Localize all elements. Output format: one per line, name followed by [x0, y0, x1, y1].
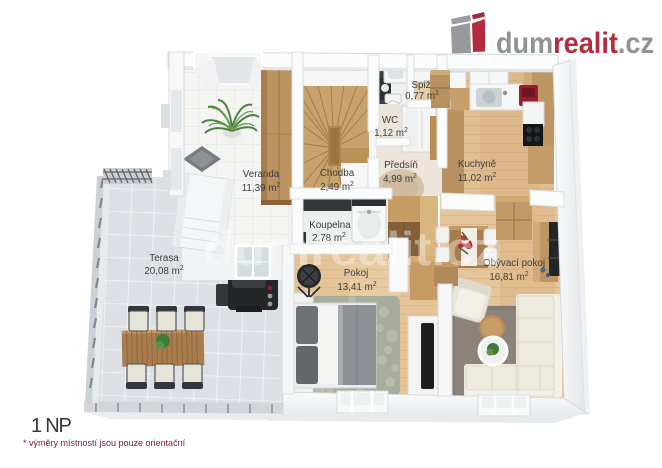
- svg-text:Kuchyně: Kuchyně: [458, 159, 497, 170]
- svg-text:Spiž: Spiž: [411, 80, 430, 91]
- svg-text:11,39 m2: 11,39 m2: [242, 182, 281, 194]
- svg-text:Veranda: Veranda: [243, 169, 280, 180]
- svg-text:0,77 m2: 0,77 m2: [405, 90, 439, 102]
- svg-text:Předsíň: Předsíň: [384, 160, 418, 171]
- svg-text:1,12 m2: 1,12 m2: [374, 127, 408, 139]
- svg-text:1 NP: 1 NP: [31, 415, 72, 437]
- svg-text:11,02 m2: 11,02 m2: [458, 172, 497, 184]
- svg-text:13,41 m2: 13,41 m2: [337, 281, 376, 293]
- svg-text:Terasa: Terasa: [149, 253, 179, 264]
- svg-text:20,08 m2: 20,08 m2: [144, 265, 183, 277]
- svg-text:4,99 m2: 4,99 m2: [383, 173, 417, 185]
- svg-text:WC: WC: [382, 115, 398, 126]
- svg-text:dumrealit.cz: dumrealit.cz: [496, 27, 654, 60]
- svg-text:* výměry místností jsou pouze: * výměry místností jsou pouze orientační: [23, 438, 186, 448]
- svg-text:dumrealit.cz: dumrealit.cz: [203, 222, 499, 275]
- svg-text:2,49 m2: 2,49 m2: [320, 181, 354, 193]
- svg-text:Chodba: Chodba: [320, 168, 355, 179]
